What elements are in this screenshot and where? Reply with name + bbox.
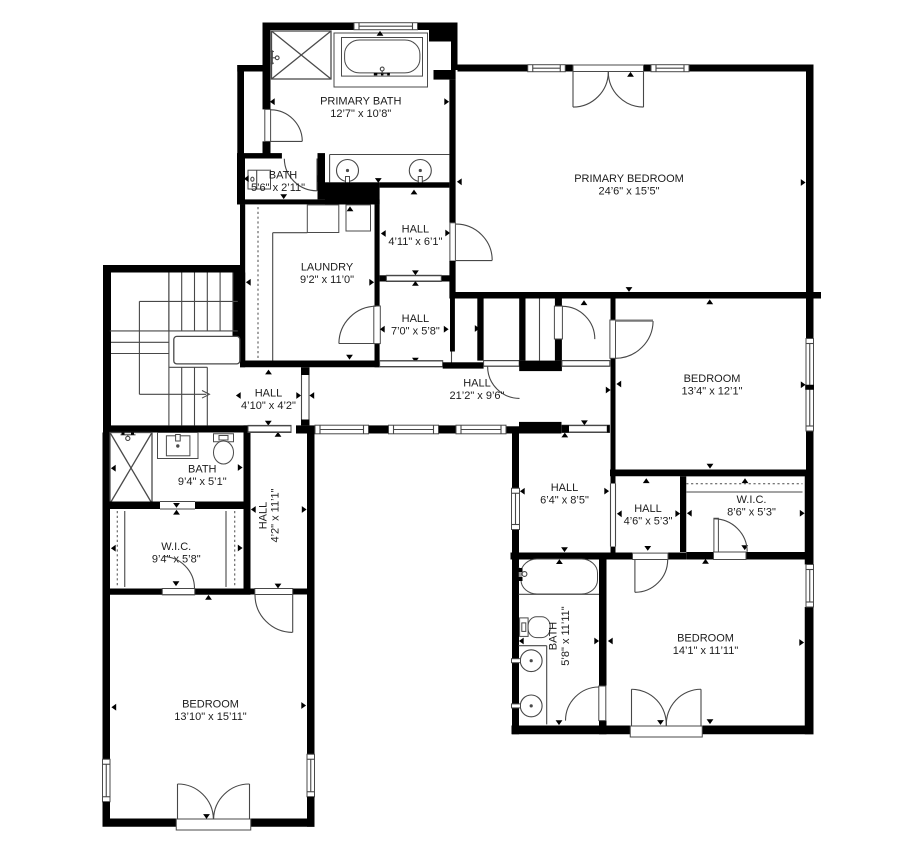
svg-text:9’2" x 11’0": 9’2" x 11’0" [300, 274, 354, 286]
svg-text:4’11" x 6’1": 4’11" x 6’1" [388, 236, 442, 248]
svg-text:21’2" x 9’6": 21’2" x 9’6" [450, 390, 505, 402]
svg-text:HALL: HALL [258, 502, 270, 530]
svg-text:HALL: HALL [551, 482, 579, 494]
svg-text:HALL: HALL [255, 388, 283, 400]
svg-text:14’1" x 11’11": 14’1" x 11’11" [673, 645, 739, 657]
svg-text:9’4" x 5’1": 9’4" x 5’1" [178, 476, 227, 488]
svg-text:5’8" x 11’11": 5’8" x 11’11" [560, 606, 572, 665]
svg-text:8’6" x 5’3": 8’6" x 5’3" [727, 507, 776, 519]
svg-text:24’6" x 15’5": 24’6" x 15’5" [598, 186, 659, 198]
svg-text:W.I.C.: W.I.C. [161, 541, 191, 553]
svg-text:7’0" x 5’8": 7’0" x 5’8" [391, 326, 440, 338]
svg-text:4’10" x 4’2": 4’10" x 4’2" [241, 400, 296, 412]
svg-text:BEDROOM: BEDROOM [677, 633, 734, 645]
svg-text:PRIMARY BATH: PRIMARY BATH [320, 96, 401, 108]
svg-text:LAUNDRY: LAUNDRY [301, 262, 354, 274]
svg-text:BATH: BATH [269, 170, 298, 182]
svg-text:HALL: HALL [634, 503, 662, 515]
svg-text:HALL: HALL [402, 224, 430, 236]
svg-text:BEDROOM: BEDROOM [182, 699, 239, 711]
svg-text:PRIMARY BEDROOM: PRIMARY BEDROOM [574, 173, 684, 185]
svg-text:HALL: HALL [463, 378, 491, 390]
svg-text:HALL: HALL [402, 313, 430, 325]
svg-text:13’10" x 15’11": 13’10" x 15’11" [174, 711, 247, 723]
svg-text:5’6" x 2’11": 5’6" x 2’11" [251, 182, 305, 194]
svg-text:6’4" x 8’5": 6’4" x 8’5" [540, 495, 589, 507]
svg-text:BATH: BATH [188, 464, 217, 476]
svg-text:BATH: BATH [548, 622, 560, 651]
svg-text:W.I.C.: W.I.C. [737, 494, 767, 506]
svg-text:4’6" x 5’3": 4’6" x 5’3" [624, 516, 673, 528]
svg-text:4’2" x 11’1": 4’2" x 11’1" [270, 488, 282, 542]
svg-text:13’4" x 12’1": 13’4" x 12’1" [681, 386, 742, 398]
svg-text:12’7" x 10’8": 12’7" x 10’8" [330, 108, 391, 120]
svg-text:BEDROOM: BEDROOM [684, 373, 741, 385]
